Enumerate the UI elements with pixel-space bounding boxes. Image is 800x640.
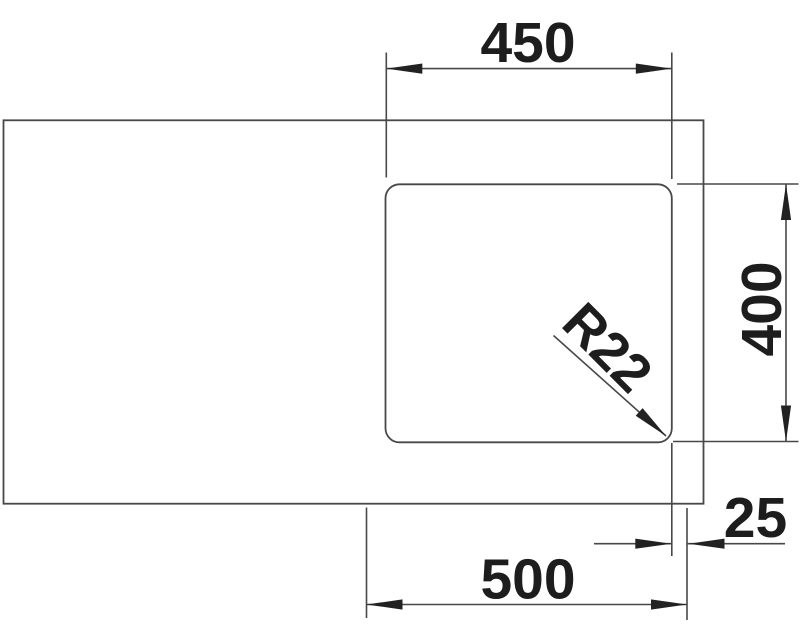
svg-text:R22: R22	[551, 292, 663, 404]
svg-text:450: 450	[480, 11, 575, 75]
svg-text:500: 500	[480, 548, 575, 612]
svg-text:400: 400	[730, 261, 794, 356]
svg-text:25: 25	[724, 486, 787, 550]
